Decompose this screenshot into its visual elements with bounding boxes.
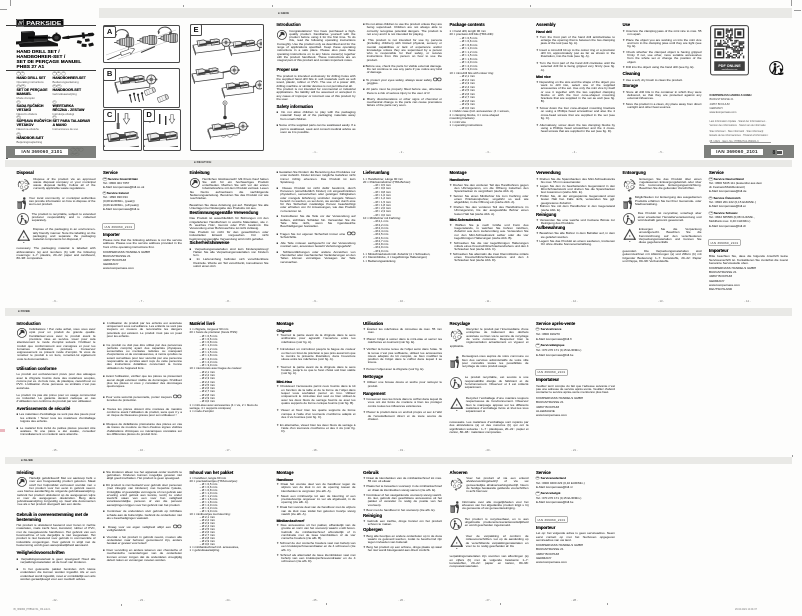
svg-text:www.lidl-service.com: www.lidl-service.com	[722, 68, 738, 71]
svg-text:PDF ONLINE: PDF ONLINE	[718, 64, 741, 68]
